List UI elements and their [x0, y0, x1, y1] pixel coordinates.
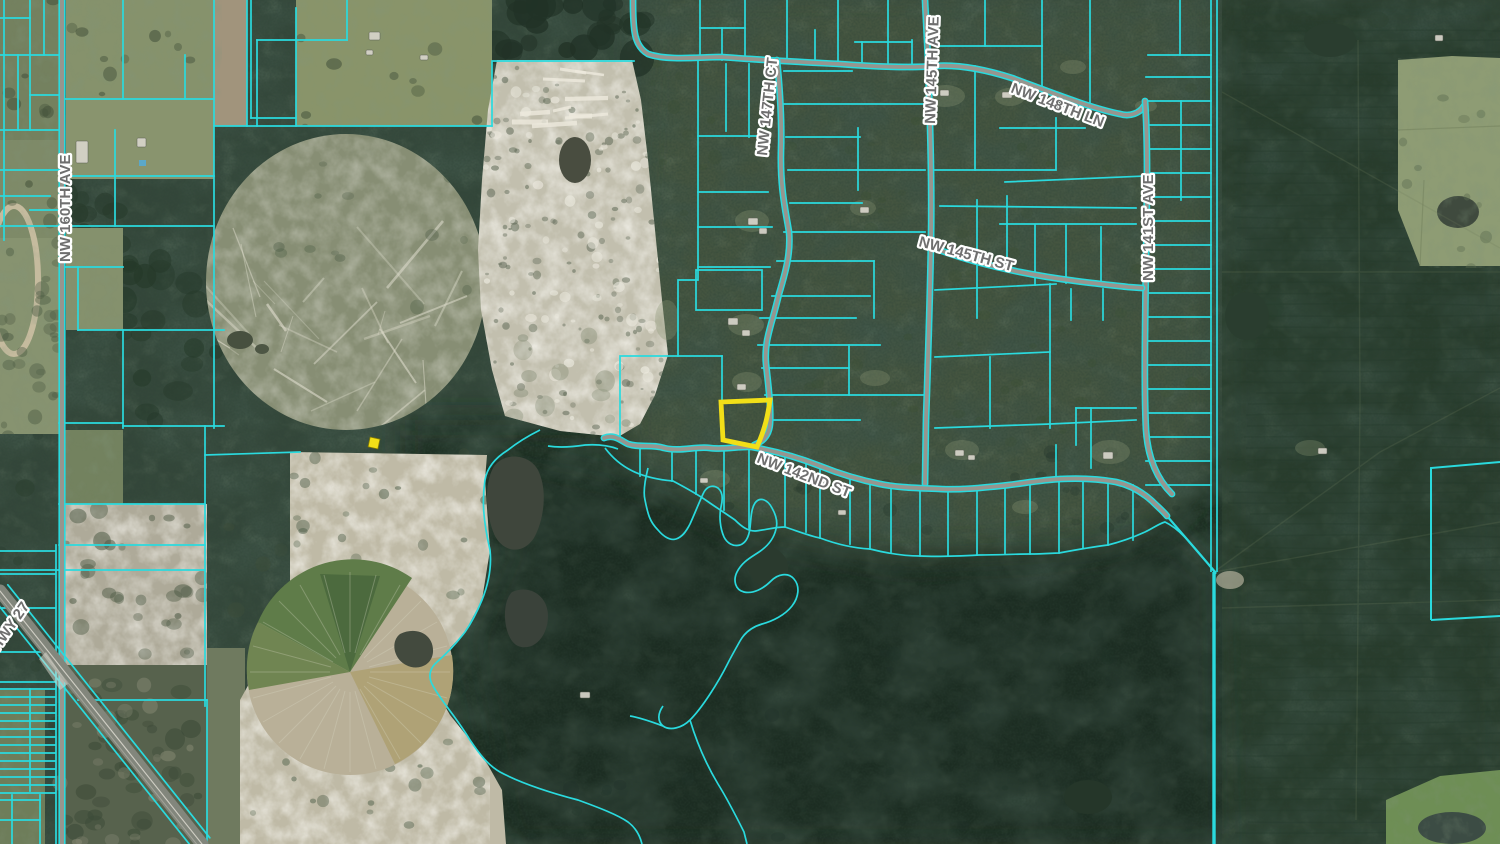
- svg-text:NW 141ST AVE: NW 141ST AVE: [1140, 174, 1157, 281]
- svg-text:NW 160TH AVE: NW 160TH AVE: [57, 154, 74, 262]
